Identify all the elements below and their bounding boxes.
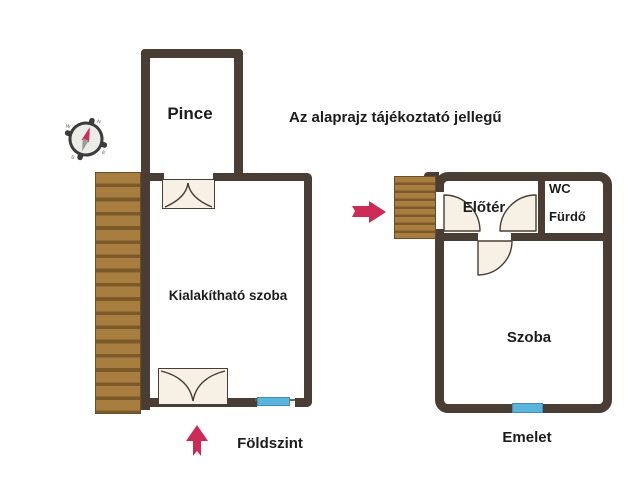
compass-letter-e: E: [101, 150, 107, 157]
uf-stairs: [394, 176, 436, 239]
pince-right-wall: [234, 49, 243, 178]
compass-icon: N E S W: [61, 114, 111, 164]
room-label-bathroom: Fürdő: [549, 209, 586, 224]
room-label-hall: Előtér: [463, 199, 506, 216]
room-label-room: Szoba: [507, 329, 551, 346]
entrance-up-arrow-icon: [186, 425, 208, 456]
room-label-wc: WC: [549, 181, 571, 196]
gf-stairs: [95, 172, 141, 414]
disclaimer-note: Az alaprajz tájékoztató jellegű: [289, 109, 502, 126]
pince-top-wall: [141, 49, 243, 58]
gf-bottom-double-door: [158, 368, 228, 405]
floor-caption-upper: Emelet: [502, 429, 551, 446]
floor-link-right-arrow-icon: [352, 201, 386, 223]
uf-wc-divider-wall: [538, 181, 545, 241]
uf-divider-wall-right: [511, 233, 604, 241]
gf-window: [257, 397, 290, 406]
compass-letter-n: N: [96, 119, 102, 126]
room-label-pince: Pince: [167, 104, 212, 124]
gf-bottom-wall-corner: [295, 398, 312, 407]
compass-letter-w: W: [65, 123, 72, 130]
uf-window: [512, 403, 543, 413]
room-label-convertible-room: Kialakítható szoba: [169, 288, 288, 303]
gf-top-wall-right: [213, 173, 312, 181]
compass-letter-s: S: [70, 154, 76, 161]
gf-right-wall: [304, 173, 312, 407]
pince-and-main-left-wall: [141, 49, 150, 410]
gf-top-double-door: [162, 179, 215, 209]
floor-caption-ground: Földszint: [237, 435, 303, 452]
gf-top-wall-left: [141, 173, 164, 181]
floor-plan-canvas: N E S W Pince Az alaprajz tájékoztató je…: [0, 0, 640, 480]
uf-divider-wall-left: [443, 233, 478, 241]
